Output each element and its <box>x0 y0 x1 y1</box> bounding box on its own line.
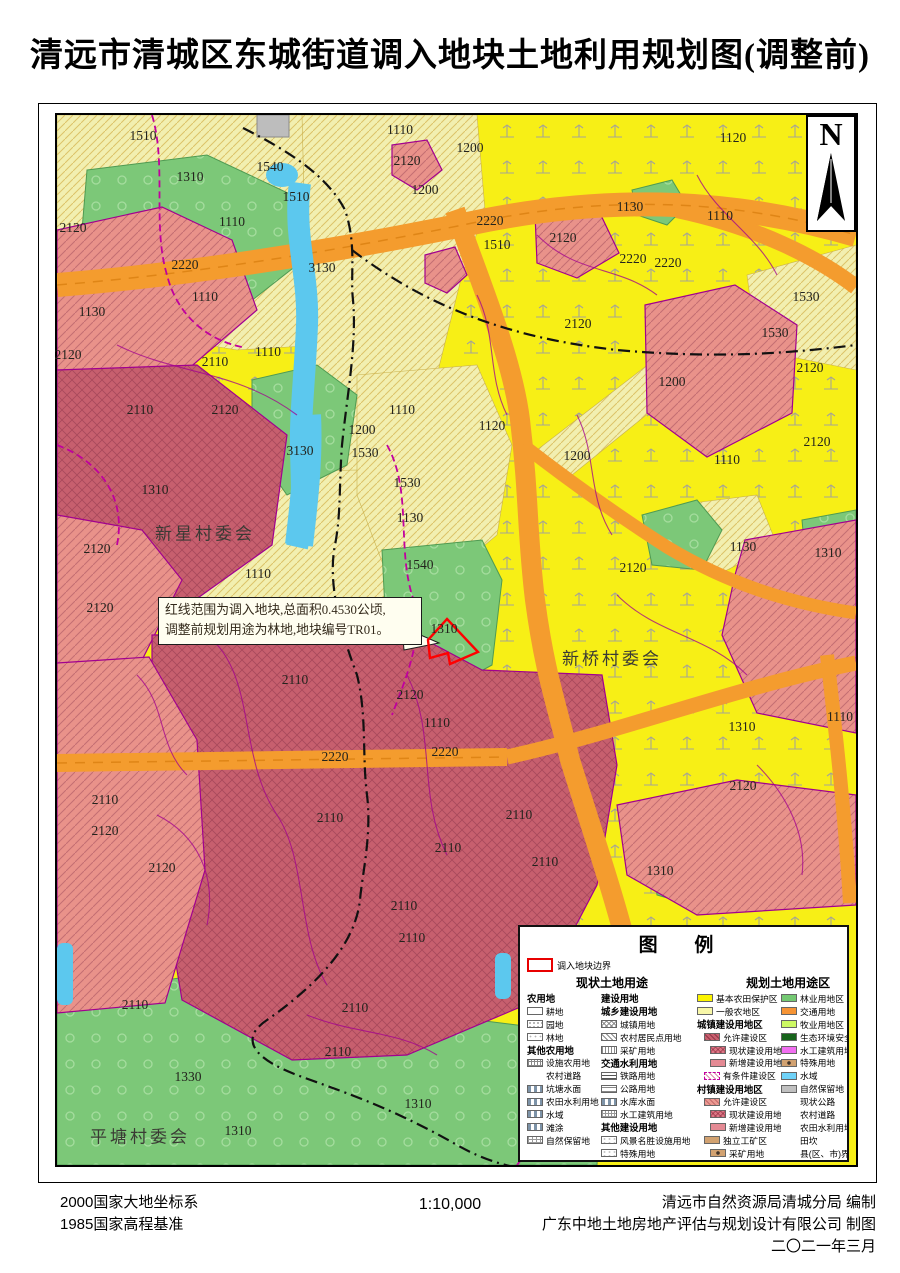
legend-swatch-s-tielu <box>601 1072 617 1080</box>
legend-label: 独立工矿区 <box>723 1134 767 1147</box>
legend-label: 水域 <box>546 1108 564 1121</box>
legend-swatch-s-kengtang <box>527 1085 543 1093</box>
legend-swatch-s-tsyd <box>781 1059 797 1067</box>
legend-item: 铁路用地 <box>601 1069 697 1082</box>
legend-label: 新增建设用地 <box>729 1056 781 1069</box>
legend-label: 特殊用地 <box>620 1147 655 1160</box>
legend-label: 林业用地区 <box>800 992 844 1005</box>
legend-item: 独立建设用地 <box>710 1160 781 1162</box>
legend-item: 交通用地 <box>781 1005 849 1018</box>
legend-swatch-s-xzjs <box>710 1046 726 1054</box>
legend-subheader: 交通水利用地 <box>601 1056 697 1069</box>
legend-swatch-s-yxjs-cz <box>704 1033 720 1041</box>
legend-planned-header: 规划土地用途区 <box>697 974 849 991</box>
legend-item: 现状建设用地 <box>710 1044 781 1057</box>
legend-planned-group: 规划土地用途区 基本农田保护区一般农地区城镇建设用地区允许建设区现状建设用地新增… <box>697 973 849 1162</box>
map-sheet: { "title": "清远市清城区东城街道调入地块土地利用规划图(调整前)",… <box>0 0 900 1273</box>
legend-subheader: 村镇建设用地区 <box>697 1082 781 1095</box>
legend-swatch-s-sheshi <box>527 1059 543 1067</box>
legend-label: 坑塘水面 <box>546 1082 581 1095</box>
legend-label: 允许建设区 <box>723 1095 767 1108</box>
legend-swatch-s-shuiku <box>601 1098 617 1106</box>
legend-subheader: 其他农用地 <box>527 1044 601 1057</box>
legend-swatch-s-jbnt <box>697 994 713 1002</box>
legend-swatch-s-tantu <box>527 1123 543 1131</box>
north-label: N <box>808 117 854 151</box>
legend-item: 园地 <box>527 1018 601 1031</box>
legend-swatch-s-ckyd-b <box>710 1149 726 1157</box>
legend-swatch-s-xzjs <box>710 1110 726 1118</box>
legend-label: 农村居民点用地 <box>620 1031 682 1044</box>
legend-col-agri: 农用地耕地园地林地其他农用地设施农用地农村道路坑塘水面农田水利用地水域滩涂自然保… <box>527 992 601 1160</box>
annotation-line1: 红线范围为调入地块,总面积0.4530公顷, <box>165 603 386 617</box>
legend-item: 县(区、市)界 <box>781 1147 849 1160</box>
legend-label: 现状建设用地 <box>729 1044 781 1057</box>
legend-swatch-s-ybnd <box>697 1007 713 1015</box>
legend-swatch-s-lindi <box>527 1033 543 1041</box>
page-title: 清远市清城区东城街道调入地块土地利用规划图(调整前) <box>0 28 900 76</box>
legend-label: 县(区、市)界 <box>800 1147 849 1160</box>
legend-item: 坑塘水面 <box>527 1082 601 1095</box>
legend-item: 农村居民点用地 <box>601 1031 697 1044</box>
legend-subheader: 农用地 <box>527 992 601 1005</box>
legend-item: 风景名胜设施用地 <box>601 1134 697 1147</box>
legend-swatch-s-ncjm <box>601 1033 617 1041</box>
credit-line3: 二〇二一年三月 <box>542 1236 876 1258</box>
legend-item: 镇界 <box>781 1160 849 1162</box>
transfer-plot-boundary-swatch <box>527 958 553 972</box>
legend-label: 设施农用地 <box>546 1056 590 1069</box>
legend-label: 交通用地 <box>800 1005 835 1018</box>
legend-label: 独立建设用地 <box>729 1160 781 1162</box>
legend-label: 牧业用地区 <box>800 1018 844 1031</box>
legend-swatch-s-teshu-a <box>601 1149 617 1157</box>
legend-label: 建设用地 <box>601 991 639 1005</box>
legend-swatch-ln-ncdl-a <box>527 1075 543 1077</box>
legend-item: 独立工矿区 <box>704 1134 781 1147</box>
legend-label: 自然保留地 <box>546 1134 590 1147</box>
legend-swatch-s-xzjs-new <box>710 1123 726 1131</box>
legend-item: 城镇用地 <box>601 1018 697 1031</box>
legend-swatch-s-xzjs-new <box>710 1059 726 1067</box>
legend-swatch-s-ntsl-a <box>527 1098 543 1106</box>
legend-label: 公路用地 <box>620 1082 655 1095</box>
legend-item: 设施农用地 <box>527 1056 601 1069</box>
legend-label: 交通水利用地 <box>601 1056 657 1070</box>
legend-label: 允许建设区 <box>723 1031 767 1044</box>
legend-subheader: 建设用地 <box>601 992 697 1005</box>
legend-current-group: 现状土地用途 农用地耕地园地林地其他农用地设施农用地农村道路坑塘水面农田水利用地… <box>527 973 697 1162</box>
legend-label: 铁路用地 <box>620 1069 655 1082</box>
legend-label: 现状建设用地 <box>729 1108 781 1121</box>
river <box>297 183 308 547</box>
legend-label: 其他农用地 <box>527 1043 574 1057</box>
legend-item: 新增建设用地 <box>710 1056 781 1069</box>
legend-item: 牧业用地区 <box>781 1018 849 1031</box>
legend-label: 农村道路 <box>800 1108 835 1121</box>
legend-subheader: 城镇建设用地区 <box>697 1018 781 1031</box>
legend-label: 村镇建设用地区 <box>697 1082 763 1096</box>
legend-item: 农田水利用地 <box>527 1095 601 1108</box>
credits-block: 清远市自然资源局清城分局 编制 广东中地土地房地产评估与规划设计有限公司 制图 … <box>542 1192 876 1257</box>
plot-annotation-callout: 红线范围为调入地块,总面积0.4530公顷, 调整前规划用途为林地,地块编号TR… <box>158 597 422 645</box>
legend-swatch-ln-ntsl-b <box>781 1126 797 1128</box>
legend-label: 耕地 <box>546 1005 564 1018</box>
legend-label: 农村道路 <box>546 1069 581 1082</box>
legend-item: 林地 <box>527 1031 601 1044</box>
legend-swatch-s-sgjz-b <box>781 1046 797 1054</box>
pond-left <box>57 943 73 1005</box>
legend-item: 自然保留地 <box>527 1134 601 1147</box>
legend-swatch-s-ytjjs <box>704 1072 720 1080</box>
legend-item: 滩涂 <box>527 1121 601 1134</box>
legend-col-planned-other: 林业用地区交通用地牧业用地区生态环境安全控制区水工建筑用地特殊用地水域自然保留地… <box>781 992 849 1162</box>
legend-label: 水工建筑用地 <box>620 1108 673 1121</box>
north-arrow: N <box>806 115 856 232</box>
legend-item: 农村道路 <box>781 1108 849 1121</box>
legend-swatch-s-gengdi <box>527 1007 543 1015</box>
legend-item: 林业用地区 <box>781 992 849 1005</box>
legend-swatch-s-shuiyu-a <box>527 1110 543 1118</box>
datum-line2: 1985国家高程基准 <box>60 1214 198 1236</box>
legend-label: 滩涂 <box>546 1121 564 1134</box>
legend-swatch-ln-tk <box>781 1139 797 1141</box>
legend-item: 自然保留地 <box>781 1082 849 1095</box>
legend-swatch-s-stkz <box>781 1033 797 1041</box>
legend-item: 基本农田保护区 <box>697 992 781 1005</box>
legend-boundary-item: 调入地块边界 <box>527 958 841 972</box>
legend-label: 水域 <box>800 1069 818 1082</box>
legend-item: 耕地 <box>527 1005 601 1018</box>
legend-label: 采矿用地 <box>620 1044 655 1057</box>
legend-label: 水库水面 <box>620 1095 655 1108</box>
north-arrow-icon <box>811 151 851 225</box>
legend-item: 采矿用地 <box>710 1147 781 1160</box>
legend-swatch-s-zrbl-b <box>781 1085 797 1093</box>
legend-label: 农用地 <box>527 991 555 1005</box>
legend-item: 特殊用地 <box>781 1056 849 1069</box>
legend-label: 农田水利用地 <box>546 1095 599 1108</box>
legend-swatch-s-myyd <box>781 1020 797 1028</box>
legend-swatch-s-fjms <box>601 1136 617 1144</box>
legend-swatch-s-jtyd <box>781 1007 797 1015</box>
legend-item: 水库水面 <box>601 1095 697 1108</box>
legend-item: 生态环境安全控制区 <box>781 1031 849 1044</box>
legend-swatch-ln-xian <box>781 1152 797 1154</box>
pond <box>266 163 298 187</box>
legend-col-planned-zones: 基本农田保护区一般农地区城镇建设用地区允许建设区现状建设用地新增建设用地有条件建… <box>697 992 781 1162</box>
legend-swatch-s-sgjz-a <box>601 1110 617 1118</box>
legend-swatch-s-chengzhen <box>601 1020 617 1028</box>
pond-center <box>495 953 511 999</box>
legend-item: 现状建设用地 <box>710 1108 781 1121</box>
credit-line1: 清远市自然资源局清城分局 编制 <box>542 1192 876 1214</box>
legend-label: 镇界 <box>800 1160 818 1162</box>
legend-item: 特殊用地 <box>601 1147 697 1160</box>
legend-item: 采矿用地 <box>601 1044 697 1057</box>
legend-label: 特殊用地 <box>800 1056 835 1069</box>
legend-label: 水工建筑用地 <box>800 1044 849 1057</box>
legend-label: 新增建设用地 <box>729 1121 781 1134</box>
legend-item: 允许建设区 <box>704 1095 781 1108</box>
legend-swatch-ln-ncdl-b <box>781 1113 797 1115</box>
legend-label: 林地 <box>546 1031 564 1044</box>
annotation-line2: 调整前规划用途为林地,地块编号TR01。 <box>165 623 389 637</box>
legend-label: 园地 <box>546 1018 564 1031</box>
legend-item: 水工建筑用地 <box>601 1108 697 1121</box>
legend-label: 其他建设用地 <box>601 1120 657 1134</box>
legend-item: 水域 <box>527 1108 601 1121</box>
legend-swatch-s-lyyd <box>781 994 797 1002</box>
legend-label: 现状公路 <box>800 1095 835 1108</box>
legend-item: 一般农地区 <box>697 1005 781 1018</box>
legend-item: 公路用地 <box>601 1082 697 1095</box>
legend-item: 田坎 <box>781 1134 849 1147</box>
legend-subheader: 城乡建设用地 <box>601 1005 697 1018</box>
legend-label: 农田水利用地 <box>800 1121 849 1134</box>
legend-label: 基本农田保护区 <box>716 992 778 1005</box>
legend-swatch-s-dlgk <box>704 1136 720 1144</box>
legend-label: 风景名胜设施用地 <box>620 1134 690 1147</box>
legend-item: 新增建设用地 <box>710 1121 781 1134</box>
legend-item: 允许建设区 <box>704 1031 781 1044</box>
legend-swatch-s-zrbl-a <box>527 1136 543 1144</box>
legend-label: 田坎 <box>800 1134 818 1147</box>
legend: 图 例 调入地块边界 现状土地用途 农用地耕地园地林地其他农用地设施农用地农村道… <box>518 925 849 1162</box>
legend-title: 图 例 <box>527 930 841 957</box>
credit-line2: 广东中地土地房地产评估与规划设计有限公司 制图 <box>542 1214 876 1236</box>
legend-swatch-s-shuiyu-b <box>781 1072 797 1080</box>
legend-swatch-s-ckyd-a <box>601 1046 617 1054</box>
legend-swatch-s-yxjs-cun <box>704 1098 720 1106</box>
legend-item: 水工建筑用地 <box>781 1044 849 1057</box>
legend-subheader: 其他建设用地 <box>601 1121 697 1134</box>
legend-swatch-s-yuandi <box>527 1020 543 1028</box>
legend-label: 自然保留地 <box>800 1082 844 1095</box>
legend-label: 城镇建设用地区 <box>697 1017 763 1031</box>
legend-label: 一般农地区 <box>716 1005 760 1018</box>
legend-col-construction: 建设用地城乡建设用地城镇用地农村居民点用地采矿用地交通水利用地铁路用地公路用地水… <box>601 992 697 1160</box>
zone-natural-reserve <box>257 115 289 137</box>
legend-swatch-ln-xzgl <box>781 1101 797 1103</box>
legend-label: 采矿用地 <box>729 1147 764 1160</box>
legend-label: 城乡建设用地 <box>601 1004 657 1018</box>
legend-item: 农田水利用地 <box>781 1121 849 1134</box>
legend-label: 有条件建设区 <box>723 1069 776 1082</box>
legend-swatch-s-gonglu <box>601 1085 617 1093</box>
legend-item: 现状公路 <box>781 1095 849 1108</box>
legend-label: 城镇用地 <box>620 1018 655 1031</box>
legend-label: 生态环境安全控制区 <box>800 1031 849 1044</box>
legend-item: 水域 <box>781 1069 849 1082</box>
legend-current-header: 现状土地用途 <box>527 974 697 991</box>
legend-item: 农村道路 <box>527 1069 601 1082</box>
legend-item: 有条件建设区 <box>704 1069 781 1082</box>
legend-boundary-label: 调入地块边界 <box>557 959 611 972</box>
